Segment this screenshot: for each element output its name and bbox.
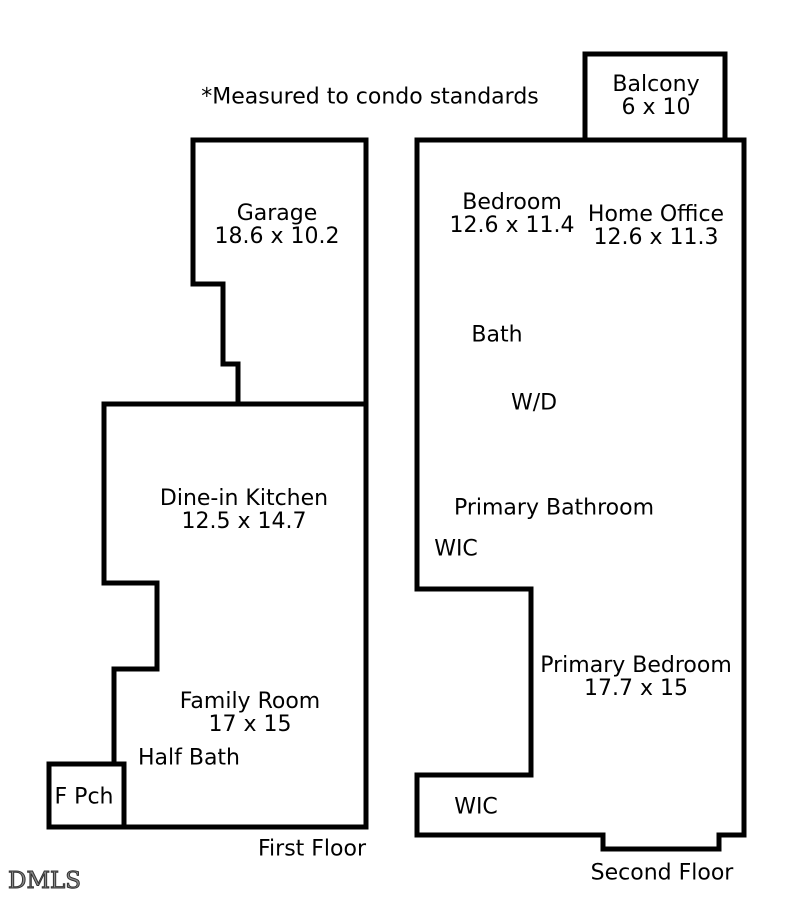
room-label-washer-dryer: W/D bbox=[511, 392, 557, 415]
room-label-balcony: Balcony 6 x 10 bbox=[612, 73, 699, 119]
second-floor-title: Second Floor bbox=[591, 862, 734, 885]
kitchen-name: Dine-in Kitchen bbox=[160, 487, 328, 510]
room-label-wic-upper: WIC bbox=[434, 538, 478, 561]
room-label-family-room: Family Room 17 x 15 bbox=[180, 690, 320, 736]
room-label-primary-bedroom: Primary Bedroom 17.7 x 15 bbox=[540, 654, 732, 700]
room-label-front-porch: F Pch bbox=[55, 786, 114, 809]
family-room-name: Family Room bbox=[180, 690, 320, 713]
balcony-dims: 6 x 10 bbox=[612, 96, 699, 119]
dmls-watermark: DMLS bbox=[8, 868, 81, 894]
room-label-primary-bathroom: Primary Bathroom bbox=[454, 497, 654, 520]
home-office-name: Home Office bbox=[588, 203, 724, 226]
bedroom-name: Bedroom bbox=[450, 191, 575, 214]
room-label-bath: Bath bbox=[471, 324, 522, 347]
garage-dims: 18.6 x 10.2 bbox=[215, 225, 340, 248]
kitchen-dims: 12.5 x 14.7 bbox=[160, 510, 328, 533]
family-room-dims: 17 x 15 bbox=[180, 713, 320, 736]
primary-bedroom-dims: 17.7 x 15 bbox=[540, 677, 732, 700]
primary-bedroom-name: Primary Bedroom bbox=[540, 654, 732, 677]
first-floor-title: First Floor bbox=[258, 838, 366, 861]
room-label-kitchen: Dine-in Kitchen 12.5 x 14.7 bbox=[160, 487, 328, 533]
garage-name: Garage bbox=[215, 202, 340, 225]
room-label-half-bath: Half Bath bbox=[138, 747, 240, 770]
room-label-garage: Garage 18.6 x 10.2 bbox=[215, 202, 340, 248]
bedroom-dims: 12.6 x 11.4 bbox=[450, 214, 575, 237]
room-label-bedroom: Bedroom 12.6 x 11.4 bbox=[450, 191, 575, 237]
floor-plan-walls bbox=[0, 0, 800, 923]
floor-plan: *Measured to condo standards Balcony 6 x… bbox=[0, 0, 800, 923]
balcony-name: Balcony bbox=[612, 73, 699, 96]
room-label-home-office: Home Office 12.6 x 11.3 bbox=[588, 203, 724, 249]
home-office-dims: 12.6 x 11.3 bbox=[588, 226, 724, 249]
room-label-wic-lower: WIC bbox=[454, 796, 498, 819]
measured-note: *Measured to condo standards bbox=[201, 86, 539, 109]
